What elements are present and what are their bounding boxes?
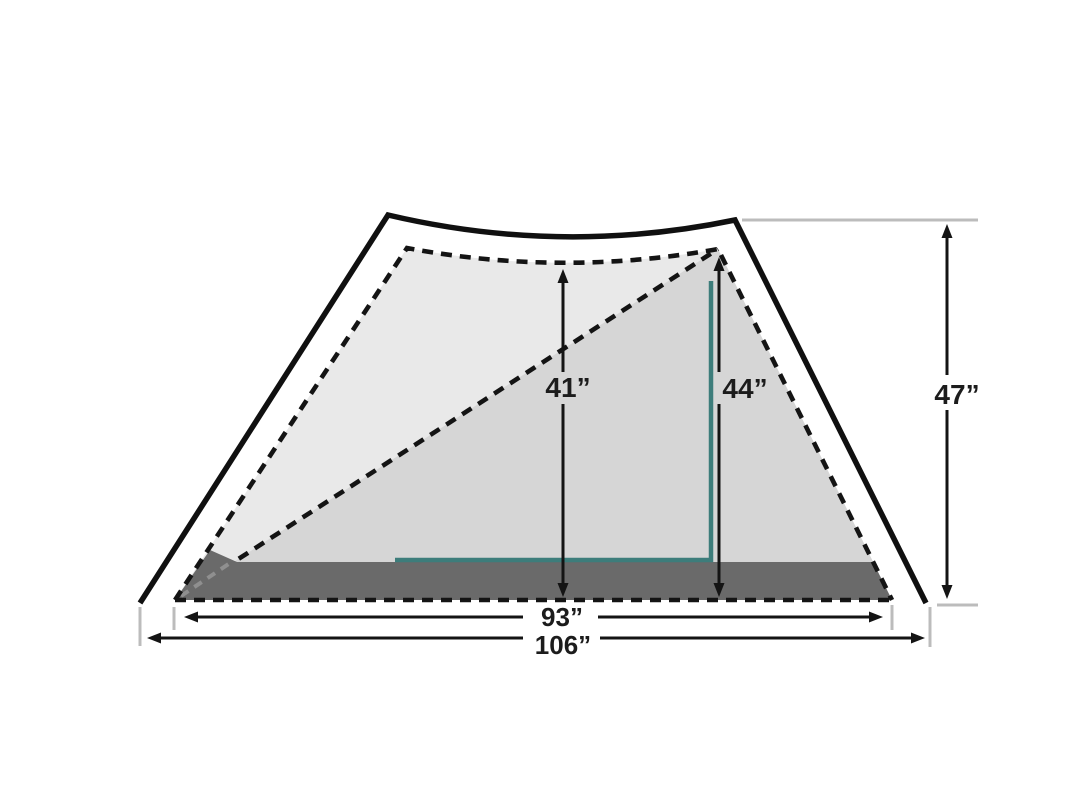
dim-41-label: 41” [545,372,590,403]
dimension-exterior-height-47: 47” [934,224,979,599]
dim-44-label: 44” [722,373,767,404]
right-arrowhead-106 [911,633,925,644]
dim-93-label: 93” [541,602,583,632]
left-arrowhead-106 [147,633,161,644]
dimension-exterior-length-106: 106” [147,630,925,660]
tent-dimension-diagram: 41” 44” 47” 93” [0,0,1080,810]
left-arrowhead-93 [184,612,198,623]
dim-106-label: 106” [535,630,591,660]
down-arrowhead-47 [942,585,953,599]
right-arrowhead-93 [869,612,883,623]
diagram-svg: 41” 44” 47” 93” [0,0,1080,810]
up-arrowhead-47 [942,224,953,238]
dim-47-label: 47” [934,379,979,410]
dimension-interior-length-93: 93” [184,602,883,632]
